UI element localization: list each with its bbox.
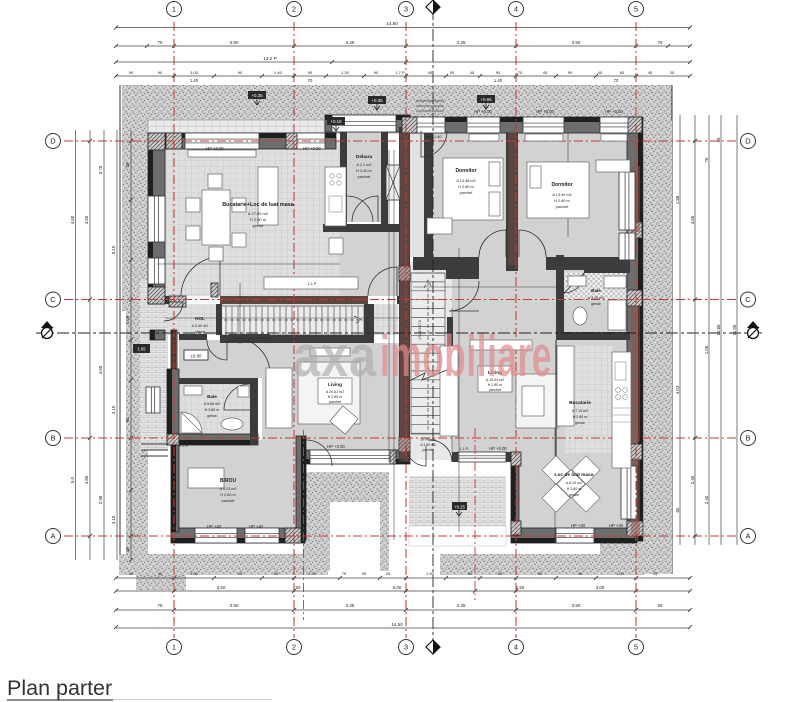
svg-text:3.25: 3.25 — [457, 603, 466, 608]
svg-text:H 2.80 m: H 2.80 m — [250, 217, 267, 222]
svg-text:A 20.61 m2: A 20.61 m2 — [326, 390, 344, 394]
svg-text:HP +40: HP +40 — [609, 523, 624, 528]
svg-text:gresie: gresie — [591, 302, 601, 306]
svg-text:gresie: gresie — [207, 414, 217, 418]
svg-text:Debara: Debara — [356, 154, 373, 160]
svg-text:11.95: 11.95 — [732, 324, 737, 335]
svg-text:Dormitor: Dormitor — [455, 168, 476, 174]
svg-text:3.15: 3.15 — [111, 515, 116, 524]
svg-text:A 13.36 m2: A 13.36 m2 — [456, 179, 475, 183]
svg-text:1.40: 1.40 — [190, 78, 199, 83]
svg-text:axa: axa — [293, 324, 377, 389]
svg-text:B: B — [745, 434, 750, 443]
svg-text:HP +0.00: HP +0.00 — [327, 444, 345, 449]
svg-text:3.10: 3.10 — [111, 405, 116, 414]
svg-text:HP +0.00: HP +0.00 — [536, 109, 554, 114]
svg-text:4.60: 4.60 — [70, 215, 75, 224]
svg-text:D: D — [745, 137, 751, 146]
svg-text:3: 3 — [404, 643, 408, 652]
svg-text:3.25: 3.25 — [346, 40, 355, 45]
svg-text:5.0: 5.0 — [70, 476, 75, 483]
svg-text:A 3.80 m2: A 3.80 m2 — [420, 443, 435, 447]
svg-text:90: 90 — [496, 70, 501, 75]
svg-text:HP +0.00: HP +0.00 — [489, 446, 507, 451]
svg-text:+0.15: +0.15 — [330, 119, 342, 124]
svg-text:75: 75 — [704, 157, 709, 162]
svg-text:1.30: 1.30 — [341, 70, 350, 75]
svg-text:25: 25 — [386, 571, 391, 576]
svg-text:H 2.80 m: H 2.80 m — [573, 415, 588, 419]
svg-text:5: 5 — [634, 5, 638, 14]
svg-text:3: 3 — [404, 5, 408, 14]
svg-text:1.1 P: 1.1 P — [308, 282, 317, 286]
svg-text:1.20: 1.20 — [308, 571, 317, 576]
svg-text:3.00: 3.00 — [190, 70, 199, 75]
svg-text:3.50: 3.50 — [217, 585, 226, 590]
svg-text:+0.25: +0.25 — [454, 505, 465, 510]
svg-text:2: 2 — [292, 643, 296, 652]
svg-text:90: 90 — [568, 70, 573, 75]
svg-text:90: 90 — [238, 70, 243, 75]
svg-text:75: 75 — [157, 40, 163, 45]
svg-text:35: 35 — [716, 137, 721, 142]
svg-text:A 4.10 m2: A 4.10 m2 — [588, 296, 604, 300]
svg-text:H 2.80 m: H 2.80 m — [567, 487, 582, 491]
svg-text:70: 70 — [614, 78, 619, 83]
svg-text:4.65: 4.65 — [98, 365, 103, 374]
svg-text:parchet: parchet — [422, 448, 433, 452]
svg-text:Plan parter: Plan parter — [7, 676, 112, 700]
svg-text:Bucatarie: Bucatarie — [569, 400, 591, 406]
svg-text:1.40: 1.40 — [274, 70, 283, 75]
svg-text:BIROU: BIROU — [220, 478, 237, 484]
svg-text:3.00: 3.00 — [596, 585, 605, 590]
svg-text:25: 25 — [670, 70, 675, 75]
svg-text:HP +40: HP +40 — [207, 524, 222, 529]
svg-text:45: 45 — [428, 70, 433, 75]
svg-text:A 5.06 m2: A 5.06 m2 — [204, 402, 220, 406]
svg-text:2.40: 2.40 — [690, 475, 695, 484]
svg-text:45: 45 — [362, 571, 367, 576]
svg-text:D: D — [50, 137, 56, 146]
svg-text:+0.35: +0.35 — [251, 93, 263, 98]
svg-text:5: 5 — [634, 643, 638, 652]
svg-text:70: 70 — [308, 78, 313, 83]
svg-text:90: 90 — [129, 70, 134, 75]
svg-text:90: 90 — [450, 70, 455, 75]
svg-text:1.90: 1.90 — [426, 571, 435, 576]
svg-text:45: 45 — [470, 70, 475, 75]
svg-text:3.50: 3.50 — [572, 40, 581, 45]
svg-text:HP +0.00: HP +0.00 — [206, 146, 224, 151]
svg-text:HP -1.40: HP -1.40 — [427, 135, 442, 139]
svg-text:A 2.1 m2: A 2.1 m2 — [357, 163, 372, 167]
svg-text:25: 25 — [657, 603, 663, 608]
svg-text:A: A — [50, 532, 55, 541]
svg-text:A 5.40 m2: A 5.40 m2 — [192, 324, 208, 328]
svg-text:gresie: gresie — [253, 223, 265, 228]
svg-text:6.00: 6.00 — [393, 585, 402, 590]
svg-text:H 2.80 m: H 2.80 m — [458, 185, 473, 189]
svg-text:75: 75 — [657, 40, 663, 45]
svg-text:HP +0.00: HP +0.00 — [474, 109, 492, 114]
svg-text:50: 50 — [675, 507, 680, 512]
svg-text:45: 45 — [648, 70, 653, 75]
svg-text:parchet: parchet — [222, 499, 236, 503]
svg-text:HP +0.00: HP +0.00 — [605, 109, 623, 114]
svg-text:1: 1 — [172, 5, 176, 14]
svg-text:HP +40: HP +40 — [249, 524, 264, 529]
svg-text:75: 75 — [518, 70, 523, 75]
svg-text:90: 90 — [274, 571, 279, 576]
svg-text:1.7 P: 1.7 P — [395, 70, 405, 75]
svg-text:90: 90 — [308, 70, 313, 75]
svg-text:H 2.80 m: H 2.80 m — [205, 408, 220, 412]
svg-text:HP +40: HP +40 — [571, 523, 586, 528]
svg-text:45: 45 — [598, 70, 603, 75]
svg-text:3.50: 3.50 — [230, 40, 239, 45]
svg-text:1.88: 1.88 — [675, 195, 680, 204]
svg-text:H 2.40 m: H 2.40 m — [356, 169, 371, 173]
svg-text:gresie: gresie — [569, 493, 579, 497]
svg-text:4.03: 4.03 — [675, 385, 680, 394]
svg-text:3.25: 3.25 — [457, 40, 466, 45]
svg-text:4: 4 — [514, 5, 518, 14]
svg-text:4.60: 4.60 — [690, 215, 695, 224]
svg-text:4.60: 4.60 — [84, 215, 89, 224]
svg-text:5.10: 5.10 — [111, 245, 116, 254]
svg-text:1: 1 — [172, 643, 176, 652]
svg-text:50: 50 — [296, 585, 301, 590]
svg-text:75: 75 — [157, 603, 163, 608]
svg-text:B: B — [50, 434, 55, 443]
svg-text:1.65: 1.65 — [137, 347, 146, 352]
svg-text:3.50: 3.50 — [572, 603, 581, 608]
svg-text:75: 75 — [342, 571, 347, 576]
svg-text:3.50: 3.50 — [230, 603, 239, 608]
svg-text:1.1 P: 1.1 P — [180, 444, 189, 448]
svg-text:±0.00: ±0.00 — [191, 354, 203, 359]
svg-text:parchet: parchet — [358, 175, 372, 179]
svg-text:+0.35: +0.35 — [371, 98, 383, 103]
svg-text:parchet: parchet — [329, 400, 341, 404]
svg-text:90: 90 — [538, 571, 543, 576]
svg-text:H 2.80 m: H 2.80 m — [220, 493, 235, 497]
svg-text:S+ Pivnita: S+ Pivnita — [420, 438, 435, 442]
svg-text:parchet: parchet — [460, 191, 474, 195]
svg-text:1.00: 1.00 — [125, 315, 130, 324]
svg-text:parchet: parchet — [556, 205, 570, 209]
svg-text:A 7.14 m2: A 7.14 m2 — [572, 409, 588, 413]
svg-text:HOL: HOL — [195, 316, 205, 321]
svg-text:40: 40 — [158, 571, 163, 576]
svg-text:45: 45 — [543, 70, 548, 75]
svg-text:A: A — [745, 532, 750, 541]
svg-text:A 27.95 m2: A 27.95 m2 — [248, 211, 269, 216]
svg-text:14.50: 14.50 — [391, 622, 403, 627]
svg-text:A 13.40 m2: A 13.40 m2 — [552, 193, 571, 197]
svg-text:+0.65: +0.65 — [480, 97, 492, 102]
svg-text:13.2 P: 13.2 P — [263, 56, 276, 61]
svg-text:gresie: gresie — [575, 421, 585, 425]
svg-text:45: 45 — [498, 571, 503, 576]
svg-text:3.75: 3.75 — [98, 165, 103, 174]
svg-text:25: 25 — [238, 571, 243, 576]
svg-text:35: 35 — [125, 162, 130, 167]
svg-text:35: 35 — [125, 547, 130, 552]
svg-text:10.85: 10.85 — [716, 324, 721, 336]
svg-text:Baie: Baie — [207, 394, 217, 399]
svg-text:H 2.80 m: H 2.80 m — [554, 199, 569, 203]
svg-text:1.06: 1.06 — [704, 345, 709, 354]
svg-text:A 9.23 m2: A 9.23 m2 — [219, 487, 236, 491]
svg-text:Loc de luat masa: Loc de luat masa — [555, 472, 594, 478]
svg-text:2: 2 — [292, 5, 296, 14]
svg-text:14.50: 14.50 — [386, 21, 398, 26]
svg-text:imobiliare: imobiliare — [380, 324, 552, 389]
svg-text:3.25: 3.25 — [346, 603, 355, 608]
svg-text:Dormitor: Dormitor — [551, 182, 572, 188]
svg-text:C: C — [50, 295, 56, 304]
svg-text:1.50: 1.50 — [516, 585, 525, 590]
svg-text:Bucatarie+Loc de luat masa: Bucatarie+Loc de luat masa — [222, 202, 294, 208]
svg-text:50: 50 — [468, 571, 473, 576]
svg-text:3.00: 3.00 — [190, 571, 199, 576]
svg-text:C: C — [745, 295, 751, 304]
svg-text:45: 45 — [653, 571, 658, 576]
svg-text:1.40: 1.40 — [494, 78, 503, 83]
svg-text:H 2.80 m: H 2.80 m — [328, 395, 343, 399]
svg-text:2.98: 2.98 — [98, 495, 103, 504]
svg-text:90: 90 — [158, 70, 163, 75]
svg-text:60: 60 — [620, 70, 625, 75]
svg-text:Baie: Baie — [591, 288, 601, 293]
svg-text:gresie: gresie — [195, 330, 205, 334]
svg-text:90: 90 — [125, 417, 130, 422]
svg-text:1.00: 1.00 — [616, 571, 625, 576]
svg-text:45: 45 — [578, 571, 583, 576]
svg-text:1.1 P: 1.1 P — [460, 447, 469, 451]
svg-text:90: 90 — [374, 70, 379, 75]
svg-text:4: 4 — [514, 643, 518, 652]
svg-text:4.85: 4.85 — [84, 475, 89, 484]
svg-text:40: 40 — [129, 571, 134, 576]
svg-text:A 8.10 m2: A 8.10 m2 — [566, 481, 582, 485]
svg-text:HP +0.00: HP +0.00 — [303, 146, 321, 151]
svg-text:2.40: 2.40 — [704, 495, 709, 504]
